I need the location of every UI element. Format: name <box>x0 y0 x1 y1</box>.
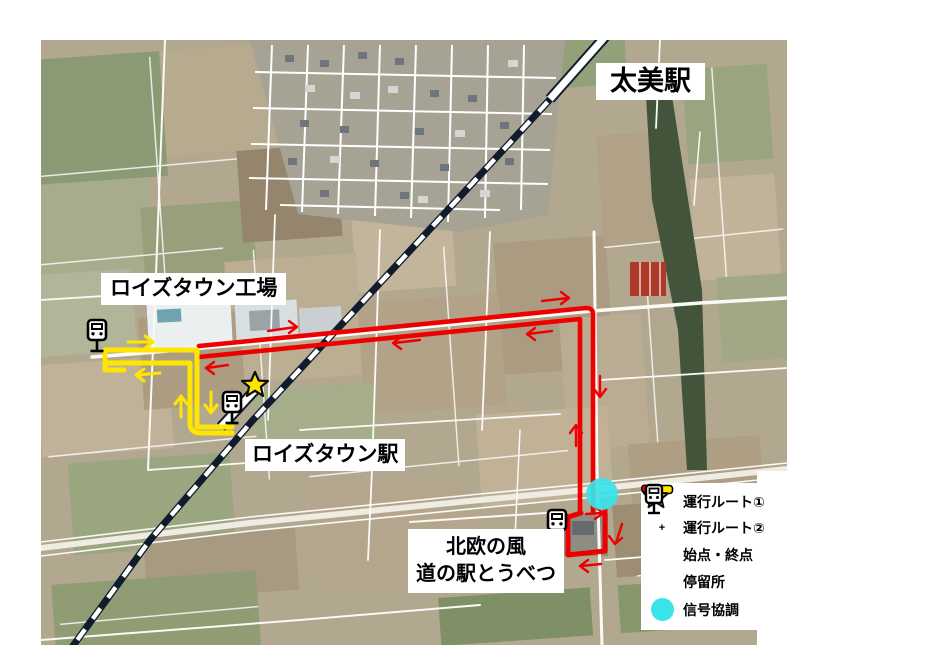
map-label-michinoeki-line1: 北欧の風 <box>416 534 556 561</box>
signal-circle-icon <box>641 598 683 621</box>
signal-coordination-marker <box>586 478 618 510</box>
legend-label-route2: 運行ルート② <box>683 518 765 538</box>
red-roof-buildings <box>630 262 666 296</box>
legend-plus-sign: + <box>659 522 665 534</box>
legend-row-start-end: 始点・終点 <box>641 545 777 565</box>
map-label-royce-town-factory: ロイズタウン工場 <box>101 273 286 305</box>
legend-row-route2: + 運行ルート② <box>641 518 777 538</box>
map-label-roizu-town-station: ロイズタウン駅 <box>245 439 405 471</box>
legend-row-bus-stop: 停留所 <box>641 572 777 592</box>
legend-row-signal: 信号協調 <box>641 598 777 621</box>
route-2-line-icon: + <box>641 522 683 534</box>
map-label-michinoeki: 北欧の風 道の駅とうべつ <box>408 529 564 593</box>
legend-label-bus-stop: 停留所 <box>683 572 725 592</box>
map-label-michinoeki-line2: 道の駅とうべつ <box>416 561 556 588</box>
legend-label-route1: 運行ルート① <box>683 492 765 512</box>
signal-circle-swatch <box>651 598 674 621</box>
legend-label-signal: 信号協調 <box>683 600 739 620</box>
legend: 運行ルート① + 運行ルート② 始点・終点 <box>641 483 777 630</box>
legend-label-start-end: 始点・終点 <box>683 545 753 565</box>
route-map-figure: 太美駅 ロイズタウン工場 ロイズタウン駅 北欧の風 道の駅とうべつ 運行ルート①… <box>0 0 940 664</box>
map-label-futomi-station: 太美駅 <box>596 63 705 100</box>
